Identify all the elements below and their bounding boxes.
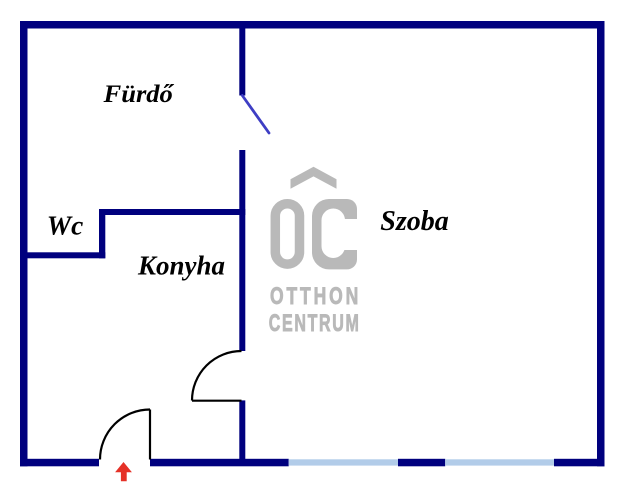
svg-text:CENTRUM: CENTRUM [269, 310, 361, 337]
svg-text:Wc: Wc [47, 211, 83, 241]
svg-text:Konyha: Konyha [137, 250, 225, 281]
svg-text:Szoba: Szoba [380, 206, 449, 237]
svg-text:OTTHON: OTTHON [270, 283, 361, 309]
svg-text:Fürdő: Fürdő [102, 81, 174, 108]
